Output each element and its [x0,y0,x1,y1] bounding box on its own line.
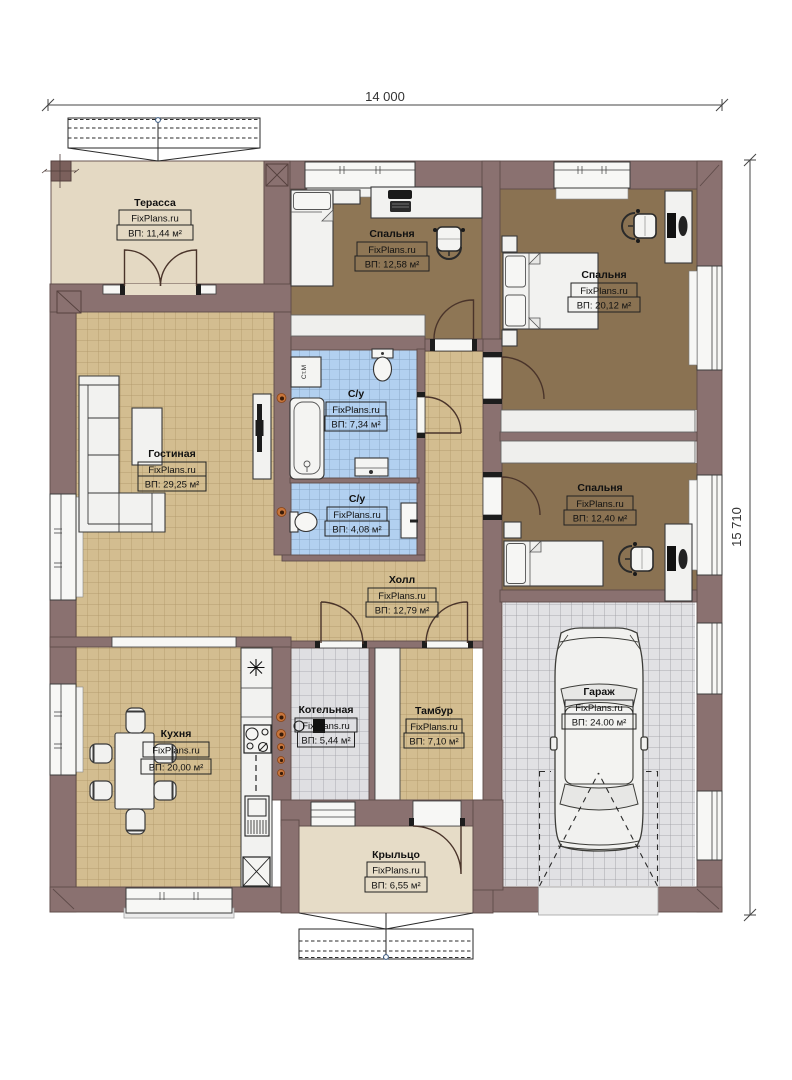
svg-text:FixPlans.ru: FixPlans.ru [580,286,628,297]
svg-text:Тамбур: Тамбур [415,705,453,717]
svg-text:FixPlans.ru: FixPlans.ru [302,721,350,732]
svg-text:FixPlans.ru: FixPlans.ru [368,245,416,256]
svg-text:Гостиная: Гостиная [148,448,195,460]
svg-text:С/у: С/у [348,388,365,400]
svg-text:Крыльцо: Крыльцо [372,849,420,861]
svg-text:FixPlans.ru: FixPlans.ru [131,214,179,225]
svg-text:ВП: 20,00 м²: ВП: 20,00 м² [149,763,204,774]
svg-text:ВП: 7,34 м²: ВП: 7,34 м² [331,420,380,431]
svg-text:FixPlans.ru: FixPlans.ru [332,405,380,416]
svg-text:ВП: 24.00 м²: ВП: 24.00 м² [572,718,627,729]
svg-text:Спальня: Спальня [369,228,414,240]
svg-text:ВП: 5,44 м²: ВП: 5,44 м² [301,736,350,747]
svg-text:ВП: 11,44 м²: ВП: 11,44 м² [128,229,182,240]
svg-text:FixPlans.ru: FixPlans.ru [410,722,458,733]
svg-text:FixPlans.ru: FixPlans.ru [152,746,200,757]
svg-text:ВП: 12,79 м²: ВП: 12,79 м² [375,606,430,617]
svg-text:FixPlans.ru: FixPlans.ru [148,465,196,476]
svg-text:ВП: 6,55 м²: ВП: 6,55 м² [371,881,420,892]
svg-text:ВП: 20,12 м²: ВП: 20,12 м² [577,301,632,312]
svg-text:Ст.М: Ст.М [301,365,308,379]
svg-text:ВП: 4,08 м²: ВП: 4,08 м² [332,525,381,536]
svg-text:Котельная: Котельная [299,704,354,716]
svg-text:Холл: Холл [389,574,415,586]
svg-text:Гараж: Гараж [583,686,615,698]
svg-text:FixPlans.ru: FixPlans.ru [575,703,623,714]
svg-text:14 000: 14 000 [365,89,405,104]
svg-text:ВП: 7,10 м²: ВП: 7,10 м² [409,737,458,748]
svg-text:FixPlans.ru: FixPlans.ru [576,499,624,510]
svg-text:FixPlans.ru: FixPlans.ru [372,866,420,877]
svg-text:ВП: 12,40 м²: ВП: 12,40 м² [573,514,628,525]
svg-text:Спальня: Спальня [577,482,622,494]
svg-text:Терасса: Терасса [134,197,176,209]
svg-text:ВП: 12,58 м²: ВП: 12,58 м² [365,260,420,271]
svg-text:Кухня: Кухня [161,728,192,740]
svg-text:15 710: 15 710 [729,507,744,547]
svg-text:FixPlans.ru: FixPlans.ru [333,510,381,521]
svg-text:FixPlans.ru: FixPlans.ru [378,591,426,602]
svg-text:ВП: 29,25 м²: ВП: 29,25 м² [145,480,200,491]
svg-text:С/у: С/у [349,493,366,505]
svg-text:Спальня: Спальня [581,269,626,281]
